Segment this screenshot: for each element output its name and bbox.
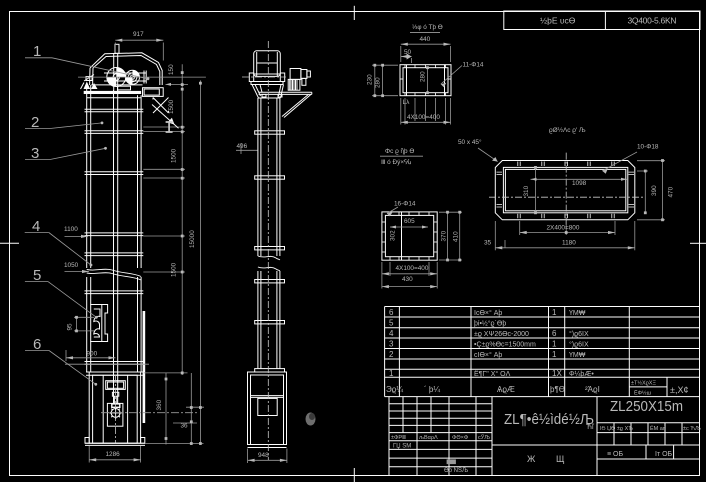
svg-text:±,X¢: ±,X¢	[670, 385, 688, 395]
svg-text:230: 230	[367, 74, 374, 85]
svg-text:4X100=400: 4X100=400	[407, 114, 440, 121]
svg-text:Щ: Щ	[556, 454, 565, 464]
svg-text:3: 3	[31, 145, 39, 162]
svg-text:440: 440	[420, 36, 431, 43]
svg-text:°)ϱ6ΙΧ: °)ϱ6ΙΧ	[569, 330, 589, 338]
svg-text:280: 280	[420, 71, 427, 82]
svg-text:ϲЎЉ: ϲЎЉ	[478, 433, 490, 441]
svg-text:360: 360	[156, 399, 163, 410]
svg-text:3Q400-5.6KN: 3Q400-5.6KN	[628, 16, 677, 26]
svg-text:280: 280	[375, 77, 382, 88]
svg-text:Ж: Ж	[527, 454, 536, 464]
svg-text:Ⅲ ó Đý×℆: Ⅲ ó Đý×℆	[381, 159, 411, 166]
svg-text:ЁΦ½ш: ЁΦ½ш	[634, 390, 652, 397]
svg-text:390: 390	[651, 185, 658, 196]
svg-text:⅓φ ó Тϸ ϴ: ⅓φ ó Тϸ ϴ	[412, 24, 443, 31]
svg-text:50: 50	[404, 49, 412, 56]
svg-text:1X: 1X	[552, 369, 562, 378]
svg-text:302: 302	[390, 230, 397, 241]
svg-text:1: 1	[552, 308, 557, 317]
svg-text:50 x 45°: 50 x 45°	[458, 138, 482, 146]
svg-text:1098: 1098	[572, 180, 587, 187]
svg-text:496: 496	[237, 143, 248, 150]
svg-text:948: 948	[258, 452, 269, 459]
svg-text:ΓЏ ЅΜ: ΓЏ ЅΜ	[393, 444, 411, 450]
svg-text:Lλ: Lλ	[403, 99, 411, 106]
svg-text:Φϲ ϱ ἢϸ ϴ: Φϲ ϱ ἢϸ ϴ	[385, 148, 414, 155]
svg-text:љΒαρΛ: љΒαρΛ	[419, 435, 438, 441]
svg-text:Іт ОБ: Іт ОБ	[655, 451, 673, 458]
svg-text:±Τ½XϱΧΞ: ±Τ½XϱΧΞ	[631, 380, 656, 387]
svg-text:900: 900	[87, 351, 98, 358]
svg-text:2: 2	[389, 350, 394, 359]
svg-text:150: 150	[168, 64, 175, 75]
svg-text:ІϬ Џϴ ±ϱ ХЂ: ІϬ Џϴ ±ϱ ХЂ	[600, 426, 633, 432]
svg-text:36: 36	[181, 423, 189, 430]
svg-text:ҮΜ₩: ҮΜ₩	[569, 310, 586, 317]
svg-text:Эϱ¼: Эϱ¼	[386, 385, 403, 394]
svg-text:•Ç±ϱ%ϴϲ=1500mm: •Ç±ϱ%ϴϲ=1500mm	[474, 342, 536, 349]
svg-text:ϸί•½°ϱ´ϴϸ: ϸί•½°ϱ´ϴϸ	[474, 320, 506, 328]
svg-text:370: 370	[441, 230, 448, 241]
svg-text:Іϲϴ×° Аϸ: Іϲϴ×° Аϸ	[474, 309, 502, 317]
svg-text:±ϱ XΨ26ϴϲ-2000: ±ϱ XΨ26ϴϲ-2000	[474, 331, 529, 338]
svg-text:ҮΜ₩: ҮΜ₩	[569, 352, 586, 359]
svg-text:Φ¼ϸÆ•: Φ¼ϸÆ•	[569, 371, 594, 378]
svg-text:Ё¶Γ" X° ОΛ: Ё¶Γ" X° ОΛ	[474, 370, 511, 378]
svg-text:15000: 15000	[189, 230, 196, 248]
svg-text:6: 6	[552, 329, 557, 338]
svg-text:430: 430	[402, 276, 413, 283]
svg-text:ϱØ½Λϲ ϱ′ Љ: ϱØ½Λϲ ϱ′ Љ	[549, 126, 586, 134]
svg-text:410: 410	[453, 231, 460, 242]
svg-text:1: 1	[552, 350, 557, 359]
svg-text:±ΦҎⅢ: ±ΦҎⅢ	[391, 435, 406, 441]
svg-text:ѦϱÆ: ѦϱÆ	[497, 385, 515, 394]
svg-text:4: 4	[32, 218, 40, 235]
svg-text:4: 4	[389, 329, 394, 338]
svg-text:±ϲ ЋЉ: ±ϲ ЋЉ	[683, 426, 701, 432]
svg-text:6: 6	[33, 336, 41, 353]
svg-text:2: 2	[31, 114, 39, 131]
svg-text:½ϸE υϲϴ: ½ϸE υϲϴ	[540, 16, 576, 26]
svg-text:ϸ¶ϴ: ϸ¶ϴ	[550, 385, 565, 394]
svg-text:1500: 1500	[171, 148, 178, 163]
svg-text:4X100=400: 4X100=400	[396, 265, 429, 272]
svg-text:1286: 1286	[106, 451, 121, 458]
svg-text:1500: 1500	[171, 262, 178, 277]
svg-text:605: 605	[404, 218, 415, 225]
svg-text:ZL250X15m: ZL250X15m	[610, 399, 683, 415]
svg-text:1050: 1050	[64, 262, 79, 269]
svg-text:ЁΜ аґ: ЁΜ аґ	[650, 425, 666, 432]
svg-text:3: 3	[389, 340, 394, 349]
svg-text:≡ ОБ: ≡ ОБ	[607, 451, 623, 458]
svg-text:1100: 1100	[64, 226, 78, 233]
svg-text:°)ϱ6ΙΧ: °)ϱ6ΙΧ	[569, 341, 589, 349]
svg-text:´ ϸ¼: ´ ϸ¼	[424, 385, 440, 394]
svg-text:10-Φ18: 10-Φ18	[637, 144, 659, 151]
svg-text:1180: 1180	[562, 240, 576, 247]
svg-text:470: 470	[668, 186, 675, 197]
svg-text:1: 1	[33, 43, 41, 60]
svg-text:ϲІϴ×° Аϸ: ϲІϴ×° Аϸ	[474, 351, 502, 359]
svg-text:1: 1	[389, 369, 394, 378]
svg-text:2X400=800: 2X400=800	[547, 225, 580, 232]
svg-text:11-Φ14: 11-Φ14	[463, 62, 484, 69]
svg-text:²ἈϱІ: ²ἈϱІ	[585, 385, 600, 394]
svg-text:917: 917	[133, 31, 144, 38]
svg-text:16-Φ14: 16-Φ14	[394, 201, 416, 208]
svg-text:6: 6	[389, 308, 394, 317]
svg-text:35: 35	[484, 240, 492, 247]
svg-text:ϴϸ ΝЅЉ: ϴϸ ΝЅЉ	[444, 468, 469, 474]
svg-text:310: 310	[523, 185, 530, 196]
svg-text:5: 5	[389, 319, 394, 328]
svg-text:Ћľ: Ћľ	[586, 424, 595, 431]
svg-text:1: 1	[552, 340, 557, 349]
svg-text:ZL¶•ê½ìdé½Љ: ZL¶•ê½ìdé½Љ	[504, 411, 594, 428]
svg-text:95: 95	[67, 323, 74, 331]
svg-text:ΦΘ×Φ: ΦΘ×Φ	[452, 435, 469, 441]
svg-text:1500: 1500	[168, 99, 175, 114]
svg-text:5: 5	[33, 267, 41, 284]
